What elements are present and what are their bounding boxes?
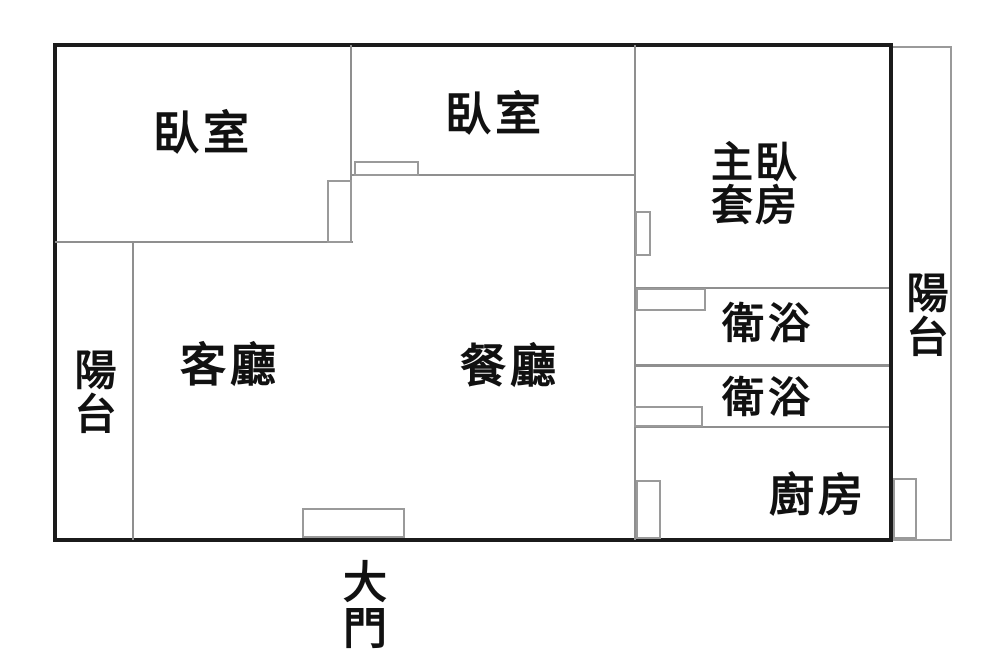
room-label-dining-room: 餐廳 (460, 343, 560, 389)
wall-bathroom-divider (636, 364, 889, 367)
room-label-balcony-left: 陽台 (71, 348, 113, 436)
master-suite-door (635, 211, 651, 256)
master-suite-label-line1: 主臥 (711, 141, 799, 184)
bedroom1-door (327, 180, 352, 243)
master-suite-label-line2: 套房 (711, 184, 799, 227)
room-label-bedroom1: 臥室 (153, 110, 253, 156)
room-label-kitchen: 廚房 (769, 473, 867, 518)
floor-plan: 臥室 臥室 主臥 套房 衛浴 衛浴 廚房 客廳 餐廳 陽台 陽台 大門 (0, 0, 1000, 664)
bedroom2-window (354, 161, 419, 176)
kitchen-door (636, 480, 661, 539)
balcony-right-door (893, 478, 917, 539)
room-label-living-room: 客廳 (180, 342, 280, 388)
room-label-master-suite: 主臥 套房 (711, 141, 799, 227)
bathroom1-door (636, 288, 706, 311)
main-entrance-door (302, 508, 405, 538)
wall-balcony-left-edge (132, 241, 134, 540)
room-label-balcony-right: 陽台 (903, 271, 945, 359)
main-entrance-label: 大門 (338, 559, 382, 651)
room-label-bedroom2: 臥室 (445, 91, 545, 137)
bathroom2-door (634, 406, 703, 427)
room-label-bathroom1: 衛浴 (722, 303, 814, 345)
room-label-bathroom2: 衛浴 (722, 377, 814, 419)
wall-bedroom1-bottom (55, 241, 353, 243)
